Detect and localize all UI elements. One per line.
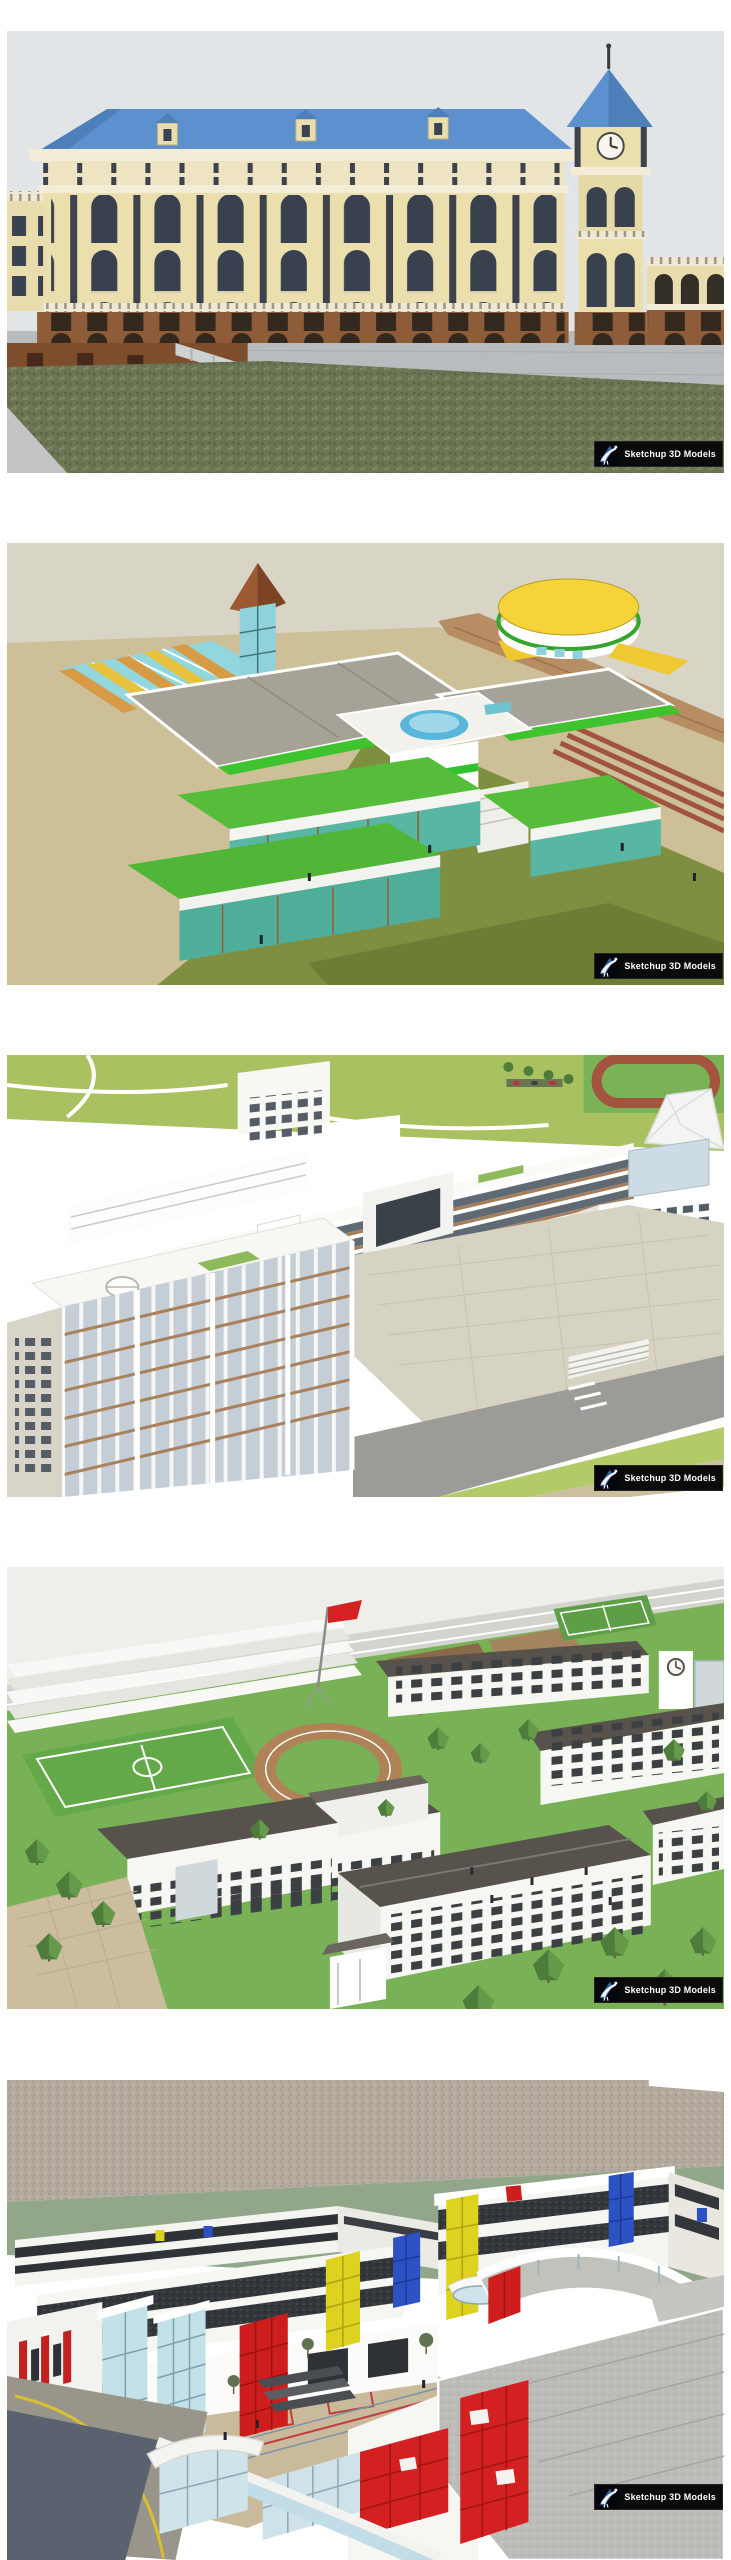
model-preview-gallery: Sketchup 3D Models — [0, 0, 731, 2560]
glass-panel-blue — [393, 2232, 420, 2308]
panel-blue-right — [609, 2172, 634, 2247]
sketchup-3d-models-logo-icon — [596, 954, 620, 978]
render-white-campus-aerial — [7, 1055, 724, 1497]
sketchup-3d-models-logo-icon — [596, 2485, 620, 2509]
watermark-label: Sketchup 3D Models — [624, 2492, 716, 2502]
watermark-badge: Sketchup 3D Models — [594, 1465, 723, 1491]
glass-tower-yellow — [326, 2251, 360, 2351]
model-preview-green-campus[interactable]: Sketchup 3D Models — [0, 1536, 731, 2048]
sketchup-3d-models-logo-icon — [596, 442, 620, 466]
model-preview-white-campus[interactable]: Sketchup 3D Models — [0, 1024, 731, 1536]
watermark-label: Sketchup 3D Models — [624, 961, 716, 971]
main-building — [29, 107, 583, 343]
sketchup-3d-models-logo-icon — [596, 1978, 620, 2002]
watermark-badge: Sketchup 3D Models — [594, 2484, 723, 2510]
render-kindergarten-aerial — [7, 543, 724, 985]
watermark-badge: Sketchup 3D Models — [594, 441, 723, 467]
model-preview-kindergarten[interactable]: Sketchup 3D Models — [0, 512, 731, 1024]
sketchup-3d-models-logo-icon — [596, 1466, 620, 1490]
watermark-label: Sketchup 3D Models — [624, 1473, 716, 1483]
arcade-wing — [647, 257, 724, 345]
red-glass-wall-main — [460, 2380, 528, 2544]
model-preview-classical-school[interactable]: Sketchup 3D Models — [0, 0, 731, 512]
model-preview-modern-campus[interactable]: Sketchup 3D Models — [0, 2048, 731, 2560]
watermark-badge: Sketchup 3D Models — [594, 1977, 723, 2003]
watermark-badge: Sketchup 3D Models — [594, 953, 723, 979]
glass-tower-red — [240, 2313, 288, 2438]
watermark-label: Sketchup 3D Models — [624, 1985, 716, 1995]
render-green-campus-aerial — [7, 1567, 724, 2009]
watermark-label: Sketchup 3D Models — [624, 449, 716, 459]
render-classical-school — [7, 31, 724, 473]
